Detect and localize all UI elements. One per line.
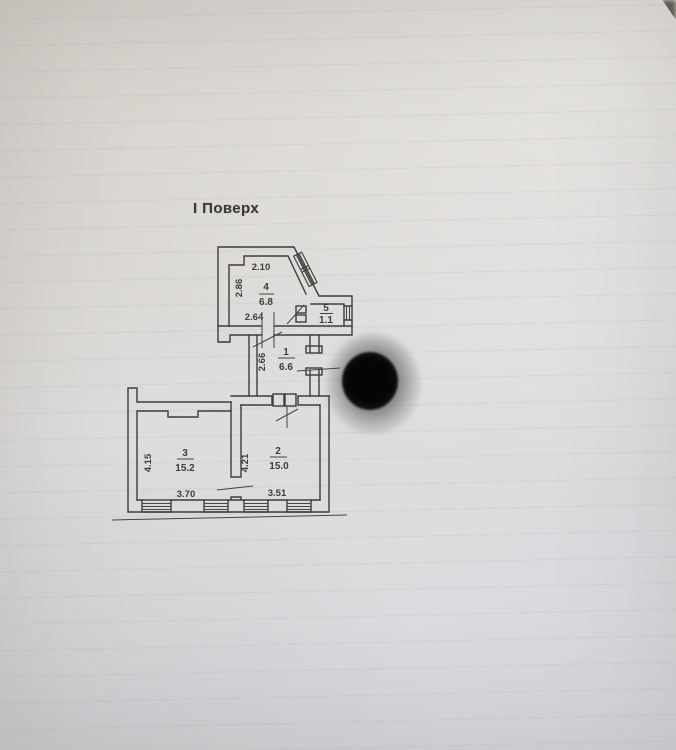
room3-number: 3 — [182, 448, 188, 459]
room4-number: 4 — [263, 282, 269, 293]
room1-number: 1 — [283, 347, 289, 358]
plan-labels: 2.10 2.86 4 6.8 2.64 5 1.1 1 6.6 2.66 3 … — [143, 262, 333, 500]
ink-blot — [342, 352, 398, 410]
room5-number: 5 — [323, 303, 329, 314]
window-room3-a-hatch — [142, 504, 171, 510]
dim-room4-top: 2.10 — [252, 262, 271, 273]
room1-area: 6.6 — [279, 362, 293, 373]
door-tick-r3-r2 — [217, 486, 253, 490]
ground-line — [112, 515, 347, 520]
dim-room3-left: 4.15 — [143, 453, 154, 472]
room5-area: 1.1 — [319, 315, 333, 326]
door-jamb-r1-r2-b — [285, 394, 296, 406]
wall-bottomblock-outer — [128, 388, 329, 512]
dim-room4-left: 2.86 — [234, 279, 245, 298]
dim-room2-left: 4.21 — [240, 453, 251, 472]
dim-room3-bottom: 3.70 — [177, 489, 196, 500]
wall-partition-r3-r2 — [231, 402, 241, 500]
wall-room1-left — [249, 335, 257, 396]
room2-area: 15.0 — [269, 461, 289, 472]
window-room2-b-hatch — [287, 504, 311, 510]
room2-number: 2 — [275, 446, 281, 457]
window-room5-frame — [344, 306, 352, 320]
door-jamb-r1-r2-a — [273, 394, 284, 406]
dim-room1-left: 2.66 — [257, 353, 268, 372]
door-passage-r4-r1 — [262, 312, 274, 348]
door-jamb-r4-r5-b — [296, 315, 306, 322]
wall-room2-top — [231, 396, 329, 405]
dim-room2-bottom: 3.51 — [268, 488, 287, 499]
wall-room1-right — [310, 335, 319, 396]
door-swing-r1-r2 — [276, 406, 298, 428]
window-room2-a-hatch — [244, 504, 268, 510]
floor-plan-photo: І Поверх — [0, 0, 676, 750]
room3-area: 15.2 — [175, 463, 195, 474]
room4-area: 6.8 — [259, 297, 273, 308]
window-room3-b-hatch — [204, 504, 228, 510]
dim-room4-bottom: 2.64 — [245, 312, 264, 323]
window-room5-hatch — [347, 306, 350, 320]
